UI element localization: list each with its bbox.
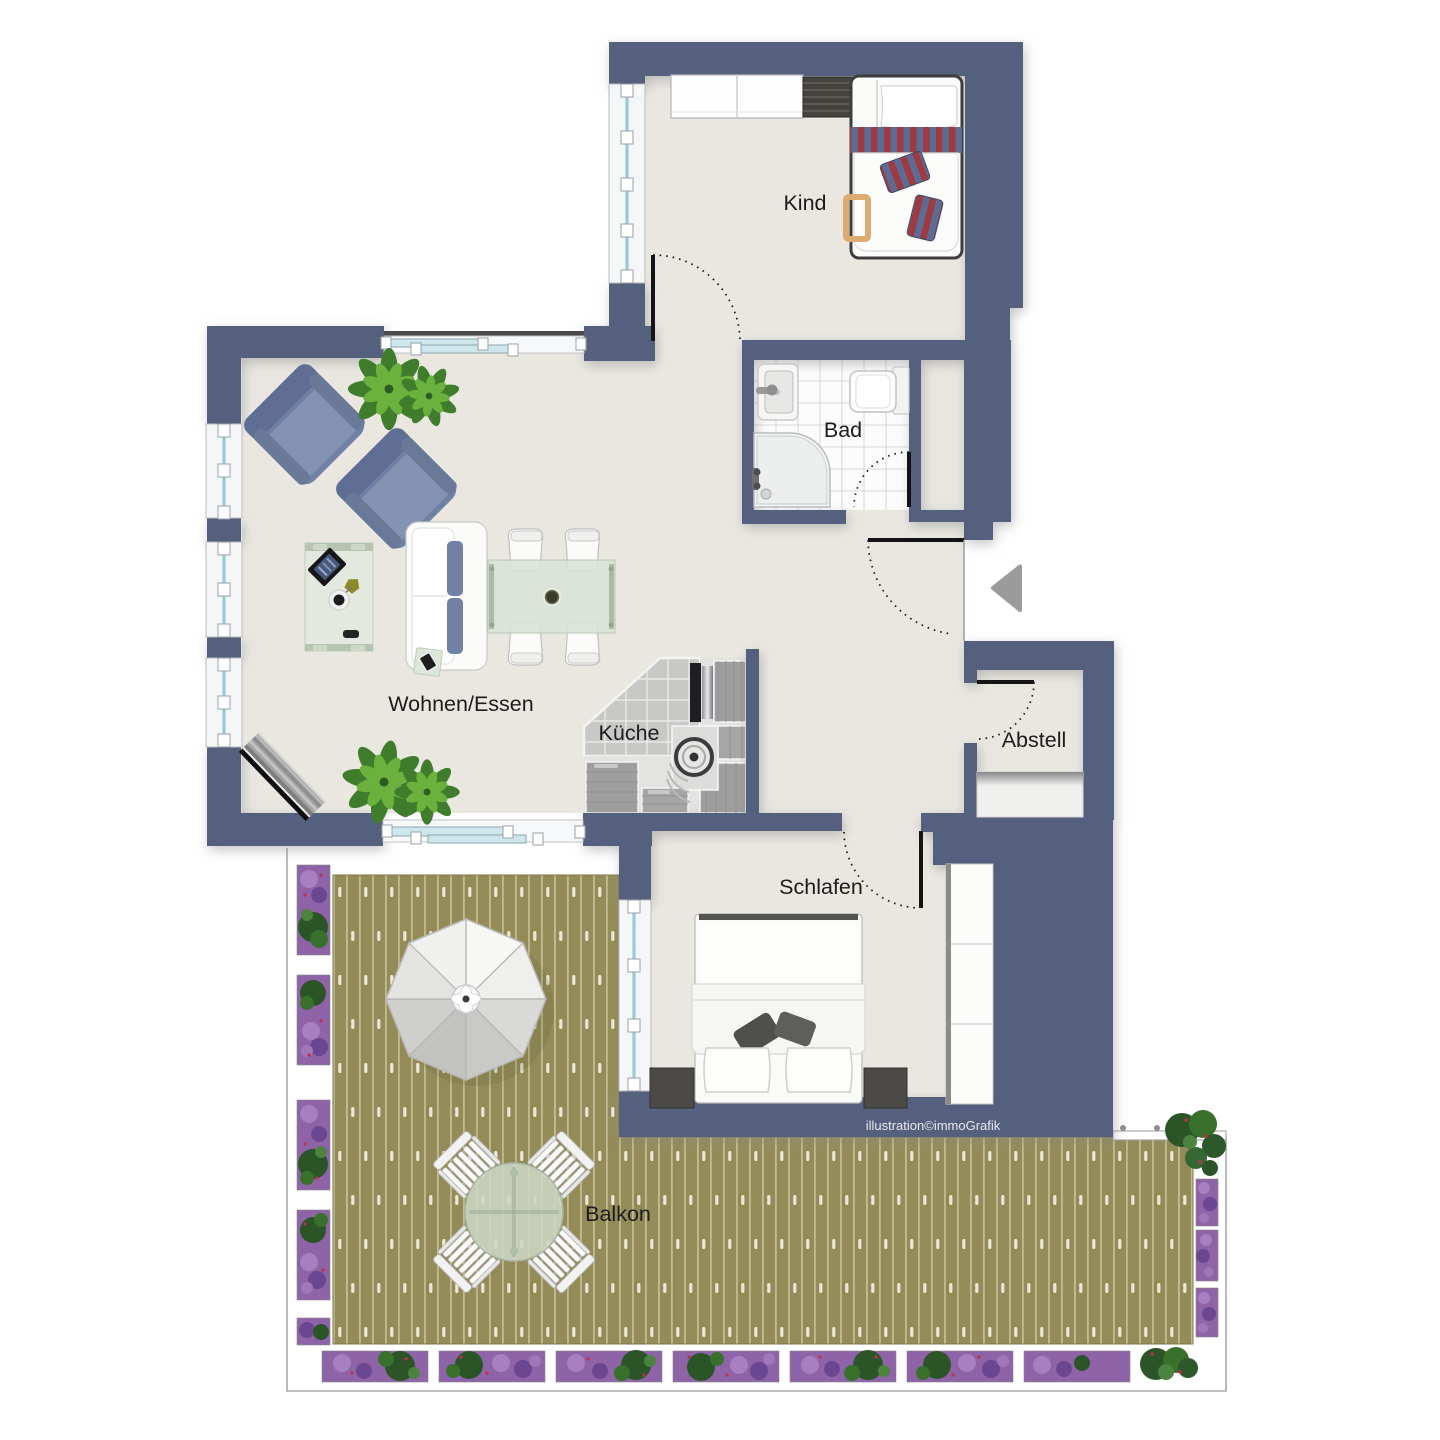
svg-text:Balkon: Balkon — [585, 1202, 651, 1226]
svg-text:Schlafen: Schlafen — [779, 875, 863, 899]
svg-text:Bad: Bad — [824, 418, 862, 442]
svg-text:illustration©immoGrafik: illustration©immoGrafik — [866, 1118, 1001, 1133]
svg-text:Wohnen/Essen: Wohnen/Essen — [388, 692, 533, 716]
svg-text:Küche: Küche — [599, 721, 660, 745]
svg-text:Kind: Kind — [783, 191, 826, 215]
svg-text:Abstell: Abstell — [1002, 728, 1067, 752]
